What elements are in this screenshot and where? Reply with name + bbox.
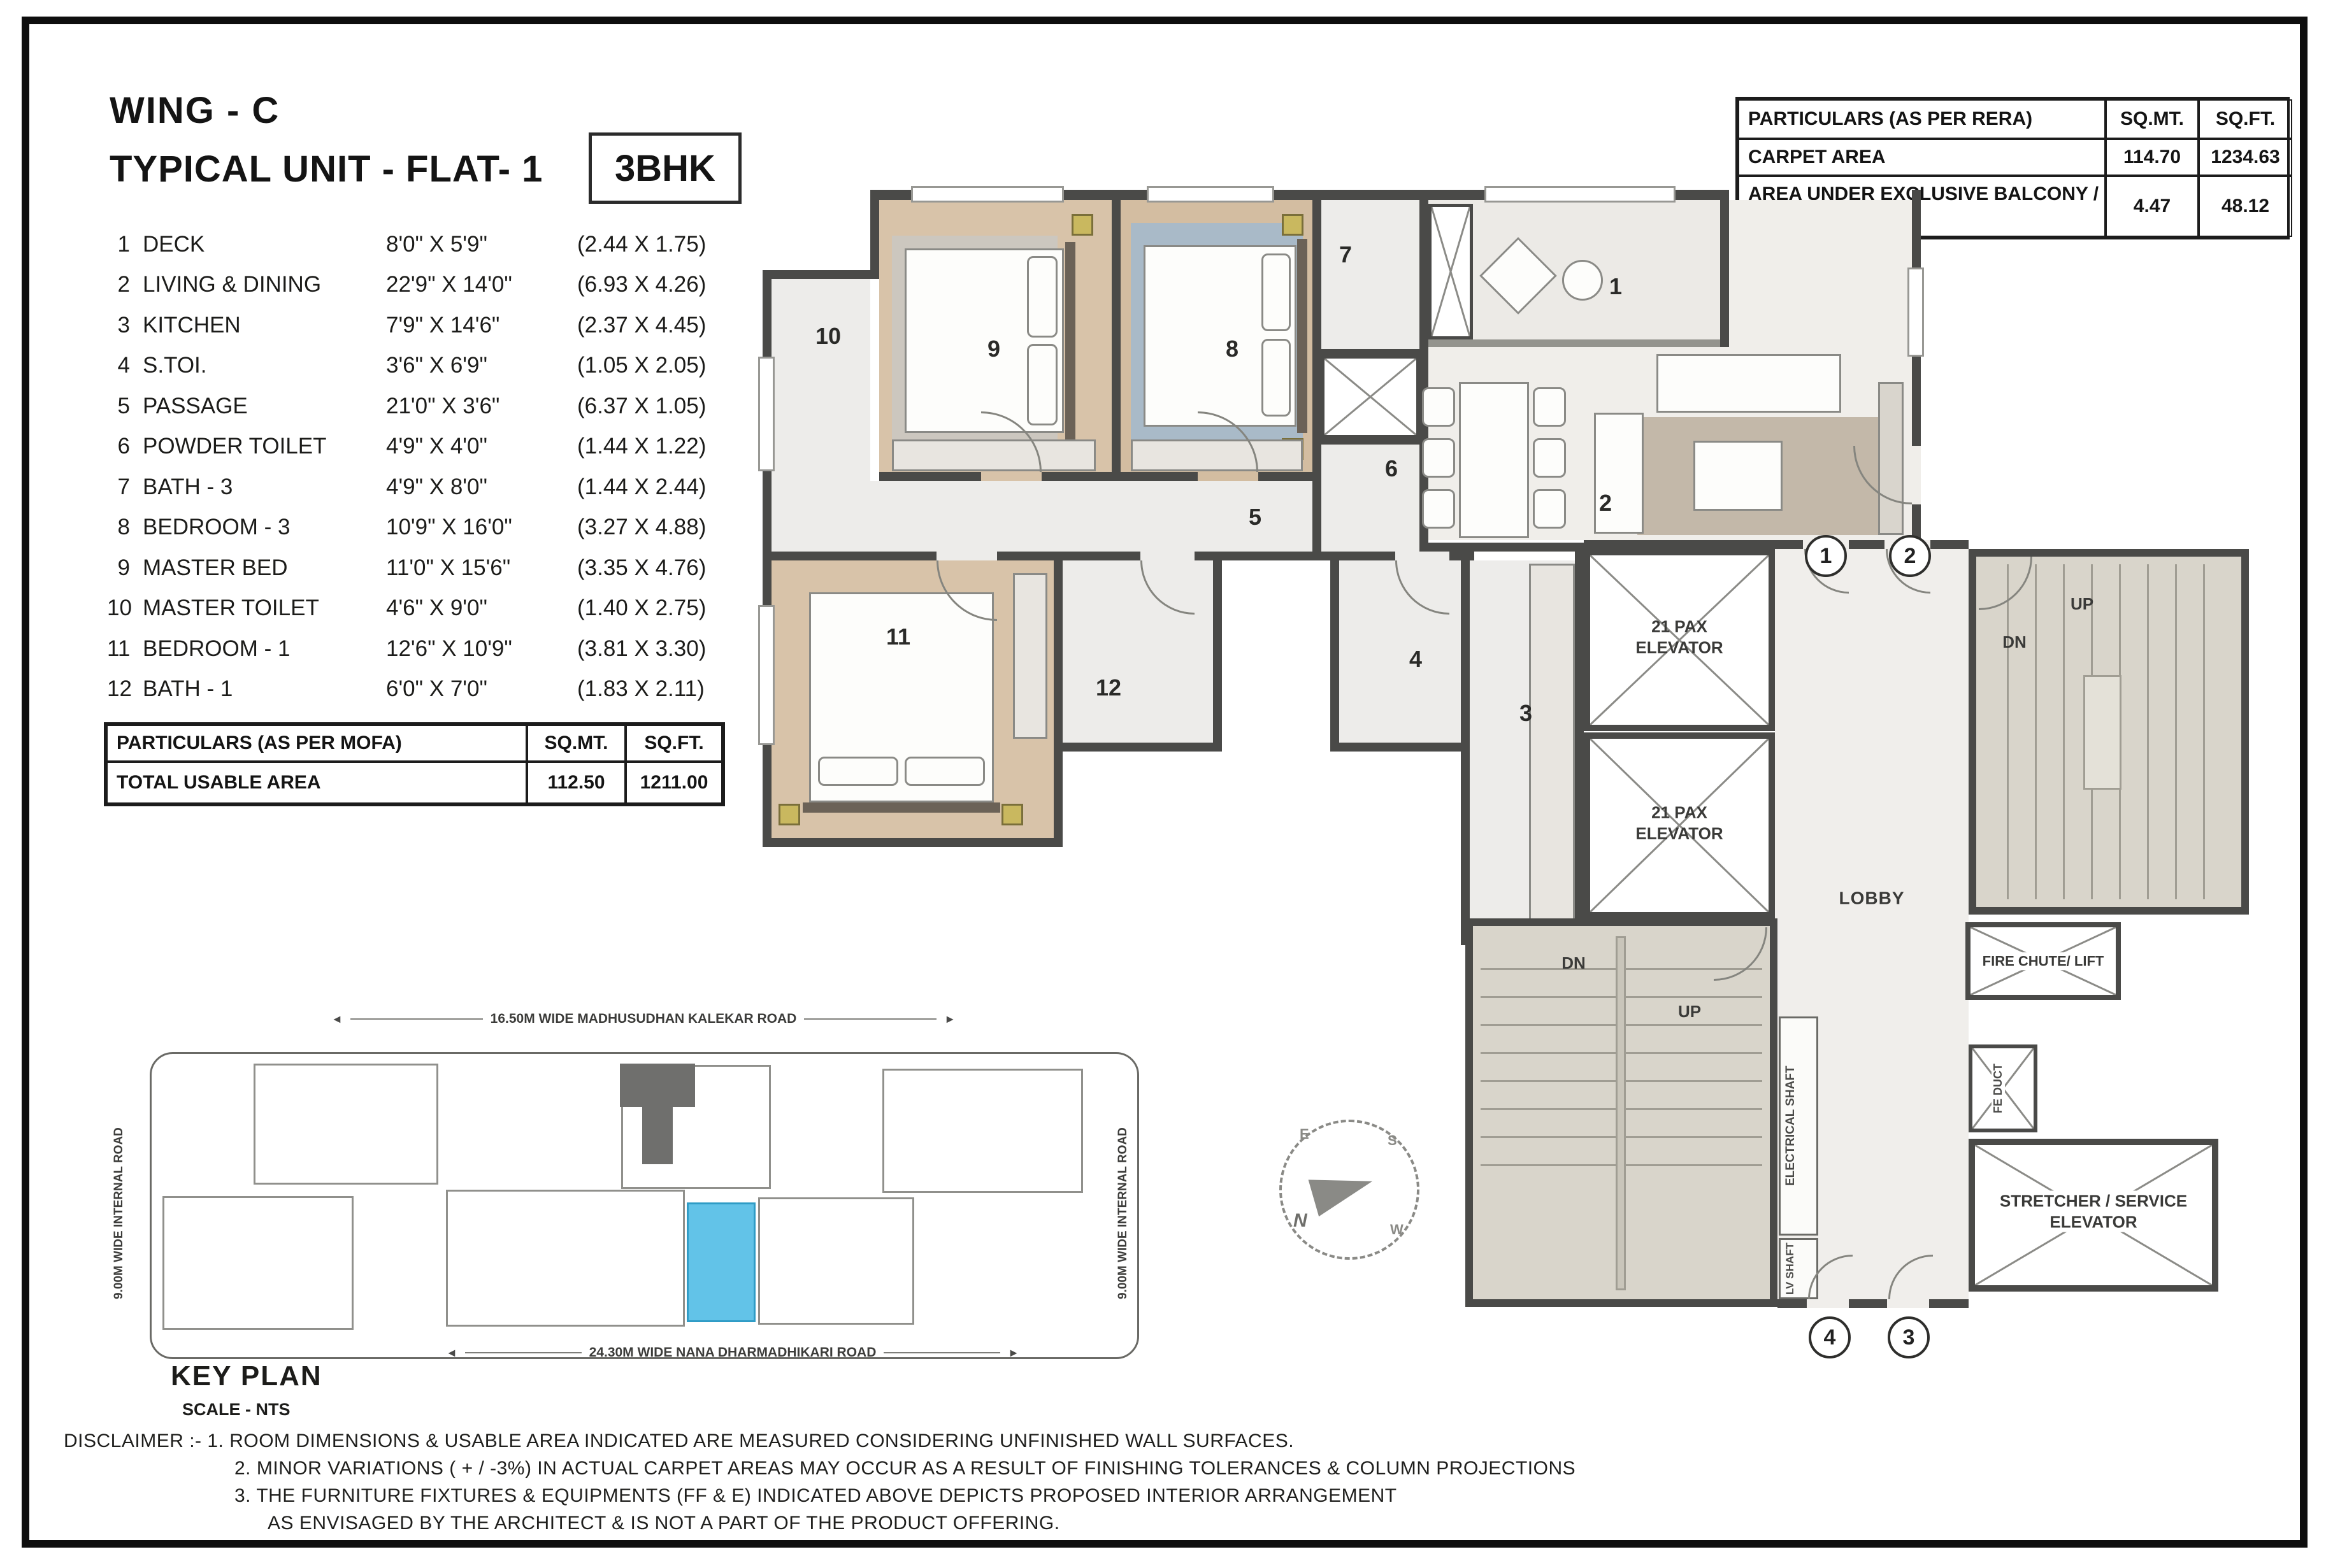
dining-table (1459, 382, 1529, 538)
entry-marker-3: 3 (1888, 1316, 1930, 1358)
coffee-table (1693, 441, 1783, 511)
dim-line (804, 1018, 937, 1020)
key-plan-building (758, 1197, 914, 1325)
dining-chair (1533, 387, 1566, 427)
window (758, 605, 775, 745)
room-dim-ft: 3'6" X 6'9" (386, 353, 577, 378)
wall (1312, 200, 1321, 560)
room-dim-m: (2.44 X 1.75) (577, 232, 706, 257)
bhk-badge: 3BHK (589, 132, 742, 204)
wall (1330, 552, 1339, 752)
room-name: BEDROOM - 3 (143, 515, 386, 540)
deck-table (1562, 260, 1603, 301)
room-name: DECK (143, 232, 386, 257)
wall (1777, 1299, 1969, 1308)
lv-shaft-label: LV SHAFT (1784, 1241, 1797, 1297)
dining-chair (1422, 387, 1455, 427)
room-dim-m: (1.83 X 2.11) (577, 676, 706, 702)
wall (1575, 552, 1584, 945)
wardrobe (1013, 573, 1047, 739)
room-bath-3 (1321, 200, 1419, 353)
room-name: MASTER TOILET (143, 595, 386, 621)
headboard (1297, 239, 1307, 433)
room-dim-m: (1.44 X 1.22) (577, 434, 706, 459)
wall (1321, 349, 1419, 355)
plan-label-master-bed: 9 (987, 336, 1000, 362)
door-gap (1198, 472, 1258, 481)
room-name: KITCHEN (143, 313, 386, 338)
window (1147, 186, 1274, 203)
key-plan-building-highlight-dark (642, 1107, 673, 1164)
deck-window-sill (1428, 339, 1720, 347)
dining-chair (1422, 438, 1455, 478)
dining-chair (1422, 489, 1455, 529)
road-dimension-bottom: ◄ 24.30M WIDE NANA DHARMADHIKARI ROAD ► (446, 1345, 1019, 1360)
room-no: 8 (107, 515, 143, 540)
dim-line (350, 1018, 483, 1020)
key-plan-building-highlight-dark (620, 1064, 695, 1107)
floor-plan-sheet: WING - C TYPICAL UNIT - FLAT- 1 3BHK 1DE… (0, 0, 2333, 1568)
room-dim-m: (3.27 X 4.88) (577, 515, 706, 540)
dim-line (884, 1352, 1000, 1353)
wall (772, 552, 1474, 560)
room-dim-ft: 4'9" X 8'0" (386, 474, 577, 500)
room-no: 3 (107, 313, 143, 338)
room-name: LIVING & DINING (143, 272, 386, 297)
road-top-label: 16.50M WIDE MADHUSUDHAN KALEKAR ROAD (491, 1011, 797, 1027)
road-right-label: 9.00M WIDE INTERNAL ROAD (1116, 1108, 1130, 1318)
mofa-title: PARTICULARS (AS PER MOFA) (106, 725, 527, 762)
rera-row-sqmt: 4.47 (2106, 176, 2199, 237)
mofa-row-sqmt: 112.50 (527, 762, 626, 804)
stair-dn-label: DN (2002, 632, 2027, 653)
stretcher-elevator-label: STRETCHER / SERVICE ELEVATOR (1995, 1191, 2192, 1232)
door-gap (1140, 552, 1195, 560)
key-plan-building (882, 1069, 1083, 1193)
room-dim-ft: 6'0" X 7'0" (386, 676, 577, 702)
room-no: 10 (107, 595, 143, 621)
plan-label-living: 2 (1599, 490, 1612, 517)
door-gap (1912, 446, 1921, 504)
wall (1419, 543, 1584, 552)
room-dim-m: (2.37 X 4.45) (577, 313, 706, 338)
key-plan-building (162, 1196, 354, 1330)
pillow (818, 757, 898, 786)
stair-up-label: UP (2071, 594, 2093, 615)
room-no: 11 (107, 636, 143, 662)
window (1484, 186, 1676, 203)
room-passage (772, 481, 1419, 552)
rera-col-sqmt: SQ.MT. (2106, 99, 2199, 139)
dim-arrow-right-icon: ► (1008, 1346, 1019, 1360)
wall (763, 270, 879, 279)
page-title-wing: WING - C (110, 89, 280, 132)
dining-chair (1533, 438, 1566, 478)
door-gap (1395, 552, 1449, 560)
dining-chair (1533, 489, 1566, 529)
pillow (1027, 256, 1058, 338)
dim-arrow-right-icon: ► (944, 1013, 956, 1026)
room-dim-m: (3.81 X 3.30) (577, 636, 706, 662)
room-dim-m: (1.05 X 2.05) (577, 353, 706, 378)
wall (763, 838, 1063, 847)
wall (1321, 438, 1419, 445)
room-dim-ft: 11'0" X 15'6" (386, 555, 577, 581)
mofa-col-sqft: SQ.FT. (626, 725, 722, 762)
electrical-shaft-label: ELECTRICAL SHAFT (1784, 1023, 1798, 1229)
room-no: 6 (107, 434, 143, 459)
headboard (803, 802, 1000, 813)
stair-dn-label: DN (1561, 953, 1586, 974)
nightstand-lamp (779, 804, 800, 825)
rera-title: PARTICULARS (AS PER RERA) (1738, 99, 2106, 139)
room-dim-m: (6.37 X 1.05) (577, 394, 706, 419)
elevator-label: 21 PAX ELEVATOR (1609, 617, 1749, 658)
compass-s: S (1388, 1132, 1397, 1149)
room-dim-ft: 4'6" X 9'0" (386, 595, 577, 621)
page-title-unit: TYPICAL UNIT - FLAT- 1 (110, 148, 543, 190)
room-name: S.TOI. (143, 353, 386, 378)
room-name: PASSAGE (143, 394, 386, 419)
entry-marker-1: 1 (1805, 535, 1847, 577)
disclaimer-line-3: 3. THE FURNITURE FIXTURES & EQUIPMENTS (… (234, 1485, 1397, 1507)
stair-landing (2083, 675, 2121, 790)
mofa-row-label: TOTAL USABLE AREA (106, 762, 527, 804)
nightstand-lamp (1282, 214, 1303, 236)
rera-col-sqft: SQ.FT. (2199, 99, 2292, 139)
plan-label-bath-1: 12 (1096, 674, 1121, 701)
room-dim-ft: 7'9" X 14'6" (386, 313, 577, 338)
key-plan-title: KEY PLAN (171, 1360, 322, 1392)
plan-label-master-toilet: 10 (815, 323, 841, 350)
mofa-col-sqmt: SQ.MT. (527, 725, 626, 762)
wall (1054, 552, 1063, 847)
plan-label-powder-toilet: 6 (1385, 455, 1398, 482)
duct-shaft (1321, 355, 1419, 438)
disclaimer-line-2: 2. MINOR VARIATIONS ( + / -3%) IN ACTUAL… (234, 1458, 1576, 1479)
room-dim-ft: 21'0" X 3'6" (386, 394, 577, 419)
room-dimension-list: 1DECK8'0" X 5'9"(2.44 X 1.75) 2LIVING & … (107, 224, 706, 709)
fe-duct-label: FE DUCT (1992, 1050, 2005, 1127)
kitchen-counter (1529, 564, 1575, 927)
room-dim-ft: 4'9" X 4'0" (386, 434, 577, 459)
dim-arrow-left-icon: ◄ (446, 1346, 457, 1360)
mofa-area-table: PARTICULARS (AS PER MOFA) SQ.MT. SQ.FT. … (104, 722, 725, 806)
wall (870, 190, 879, 279)
door-gap (1887, 1299, 1929, 1308)
compass-n: N (1293, 1210, 1307, 1232)
disclaimer-line-4: AS ENVISAGED BY THE ARCHITECT & IS NOT A… (268, 1513, 1060, 1534)
room-no: 9 (107, 555, 143, 581)
elevator-label: 21 PAX ELEVATOR (1609, 802, 1749, 844)
plan-label-s-toi: 4 (1409, 646, 1422, 673)
door-gap (1807, 1299, 1849, 1308)
stair-divider (1616, 936, 1626, 1290)
rera-row-sqft: 1234.63 (2199, 139, 2292, 176)
room-no: 12 (107, 676, 143, 702)
room-dim-m: (3.35 X 4.76) (577, 555, 706, 581)
window (911, 186, 1064, 203)
door-gap (981, 472, 1042, 481)
room-no: 1 (107, 232, 143, 257)
room-dim-m: (1.40 X 2.75) (577, 595, 706, 621)
window (758, 357, 775, 471)
nightstand-lamp (1001, 804, 1023, 825)
compass-e: E (1300, 1126, 1309, 1143)
key-plan-current-wing-highlight (687, 1202, 756, 1322)
room-dim-ft: 22'9" X 14'0" (386, 272, 577, 297)
room-name: BATH - 3 (143, 474, 386, 500)
dim-line (465, 1352, 582, 1353)
pillow (1261, 339, 1291, 417)
wall (1330, 743, 1470, 752)
entry-marker-2: 2 (1889, 535, 1931, 577)
duct-shaft (1428, 204, 1473, 339)
mofa-row-sqft: 1211.00 (626, 762, 722, 804)
entry-marker-4: 4 (1809, 1316, 1851, 1358)
room-no: 4 (107, 353, 143, 378)
dim-arrow-left-icon: ◄ (331, 1013, 343, 1026)
rera-row-sqft: 48.12 (2199, 176, 2292, 237)
room-name: POWDER TOILET (143, 434, 386, 459)
room-no: 2 (107, 272, 143, 297)
wall (1112, 200, 1121, 481)
sofa (1656, 354, 1841, 413)
plan-label-kitchen: 3 (1519, 700, 1532, 727)
plan-label-bath-3: 7 (1339, 241, 1352, 268)
room-dim-m: (6.93 X 4.26) (577, 272, 706, 297)
key-plan-building (254, 1064, 438, 1185)
wall (1054, 743, 1222, 752)
wall (1213, 552, 1222, 752)
headboard (1065, 242, 1075, 439)
road-dimension-top: ◄ 16.50M WIDE MADHUSUDHAN KALEKAR ROAD ► (331, 1011, 956, 1027)
pillow (905, 757, 985, 786)
wall (1720, 190, 1729, 347)
room-name: MASTER BED (143, 555, 386, 581)
key-plan-scale: SCALE - NTS (182, 1400, 291, 1420)
plan-label-bedroom-3: 8 (1226, 336, 1238, 362)
room-name: BEDROOM - 1 (143, 636, 386, 662)
rera-row-label: CARPET AREA (1738, 139, 2106, 176)
room-no: 7 (107, 474, 143, 500)
room-no: 5 (107, 394, 143, 419)
compass-w: W (1390, 1222, 1403, 1238)
window (1907, 267, 1924, 357)
room-dim-ft: 8'0" X 5'9" (386, 232, 577, 257)
plan-label-bedroom-1: 11 (886, 624, 910, 650)
key-plan-building (446, 1190, 685, 1327)
room-name: BATH - 1 (143, 676, 386, 702)
road-left-label: 9.00M WIDE INTERNAL ROAD (112, 1108, 126, 1318)
stair-up-label: UP (1678, 1001, 1701, 1022)
fire-chute-label: FIRE CHUTE/ LIFT (1979, 952, 2108, 970)
lobby-label: LOBBY (1839, 887, 1905, 909)
room-dim-m: (1.44 X 2.44) (577, 474, 706, 500)
road-bottom-label: 24.30M WIDE NANA DHARMADHIKARI ROAD (589, 1345, 877, 1360)
door-gap (937, 552, 997, 560)
pillow (1027, 344, 1058, 425)
room-dim-ft: 12'6" X 10'9" (386, 636, 577, 662)
pillow (1261, 253, 1291, 331)
disclaimer-line-1: DISCLAIMER :- 1. ROOM DIMENSIONS & USABL… (64, 1430, 1294, 1452)
plan-label-passage: 5 (1249, 504, 1261, 531)
rera-row-sqmt: 114.70 (2106, 139, 2199, 176)
room-dim-ft: 10'9" X 16'0" (386, 515, 577, 540)
nightstand-lamp (1072, 214, 1093, 236)
plan-label-deck: 1 (1609, 273, 1622, 300)
